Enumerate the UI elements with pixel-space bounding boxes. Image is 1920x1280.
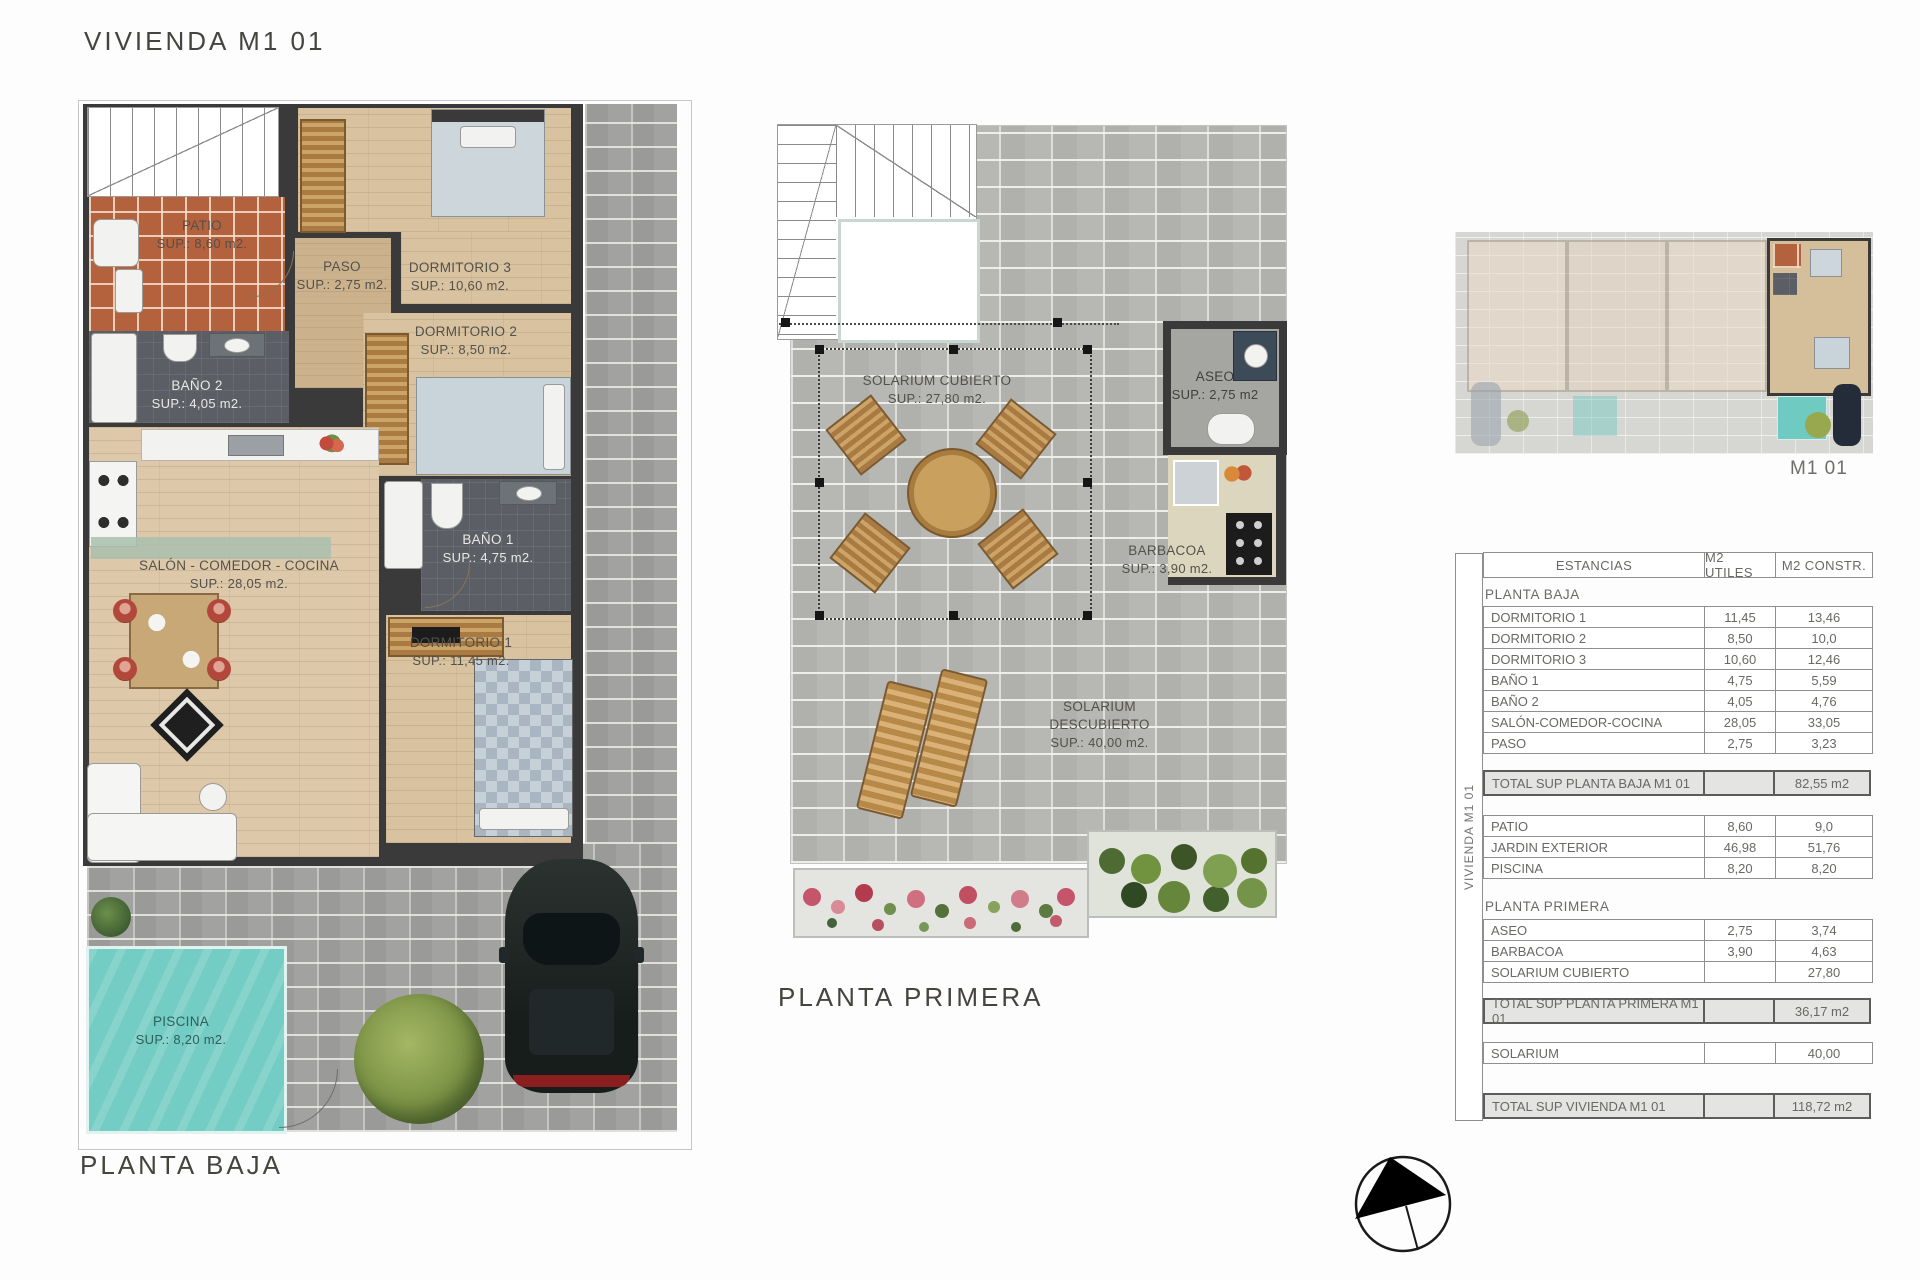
total-planta-baja-row: TOTAL SUP PLANTA BAJA M1 0182,55 m2 <box>1483 770 1875 798</box>
chair <box>207 657 231 681</box>
table-row: SALÓN-COMEDOR-COCINA28,0533,05 <box>1483 711 1875 733</box>
chair <box>113 599 137 623</box>
unit-highlighted <box>1767 238 1871 396</box>
table-row: PISCINA8,208,20 <box>1483 857 1875 879</box>
floor-plan-sheet: VIVIENDA M1 01 <box>0 0 1920 1280</box>
sink <box>209 333 265 357</box>
stairs <box>87 107 279 197</box>
header-estancias: ESTANCIAS <box>1483 552 1705 578</box>
unit-faded <box>1667 240 1767 392</box>
tree <box>1507 410 1529 432</box>
table-row: DORMITORIO 310,6012,46 <box>1483 648 1875 670</box>
table-row: BAÑO 24,054,76 <box>1483 690 1875 712</box>
room-label-piscina: PISCINASUP.: 8,20 m2. <box>101 1013 261 1049</box>
table-row: DORMITORIO 28,5010,0 <box>1483 627 1875 649</box>
tail-lights <box>513 1075 630 1087</box>
kitchen-sink <box>228 435 284 456</box>
bed <box>416 377 571 475</box>
mirror <box>499 947 509 963</box>
total-planta-primera-row: TOTAL SUP PLANTA PRIMERA M1 0136,17 m2 <box>1483 998 1875 1026</box>
table-row: DORMITORIO 111,4513,46 <box>1483 606 1875 628</box>
side-table <box>199 783 227 811</box>
caption-planta-baja: PLANTA BAJA <box>80 1150 283 1181</box>
room-label-salon: SALÓN - COMEDOR - COCINASUP.: 28,05 m2. <box>129 557 349 593</box>
car-faded <box>1471 382 1501 446</box>
planter-flowers <box>793 868 1089 938</box>
north-arrow-icon <box>1346 1146 1462 1262</box>
flowers <box>314 433 350 456</box>
page-title: VIVIENDA M1 01 <box>84 26 325 57</box>
thumbnail-caption: M1 01 <box>1790 458 1880 480</box>
table-row: PATIO8,609,0 <box>1483 815 1875 837</box>
section-planta-baja: PLANTA BAJA <box>1483 587 1875 602</box>
car <box>1833 384 1861 446</box>
room-label-patio: PATIOSUP.: 8,60 m2. <box>142 217 262 253</box>
unit-faded <box>1467 240 1567 392</box>
chair <box>113 657 137 681</box>
site-plan-thumbnail <box>1455 232 1873 454</box>
washer <box>93 219 139 267</box>
pillar-line <box>779 323 1119 325</box>
header-m2-utiles: M2 UTILES <box>1704 552 1776 578</box>
toilet <box>1207 413 1255 445</box>
stairs <box>777 124 977 340</box>
bed <box>431 109 545 217</box>
room-label-barbacoa: BARBACOASUP.: 3,90 m2. <box>1087 542 1247 578</box>
table-row: SOLARIUM CUBIERTO27,80 <box>1483 961 1875 983</box>
table-row: BARBACOA3,904,63 <box>1483 940 1875 962</box>
room-label-solarium-descubierto: SOLARIUM DESCUBIERTOSUP.: 40,00 m2. <box>1017 698 1182 752</box>
kitchen-counter <box>141 429 379 461</box>
shower-tray <box>1173 460 1219 506</box>
table-row: SOLARIUM40,00 <box>1483 1042 1875 1064</box>
food-tray <box>1220 463 1254 485</box>
table-row: PASO2,753,23 <box>1483 732 1875 754</box>
plant <box>91 897 131 937</box>
roof <box>529 989 614 1055</box>
pillow <box>460 126 516 148</box>
total-vivienda-row: TOTAL SUP VIVIENDA M1 01118,72 m2 <box>1483 1093 1875 1121</box>
floor-plan-planta-baja: PATIOSUP.: 8,60 m2. PASOSUP.: 2,75 m2. D… <box>78 100 692 1150</box>
chair <box>207 599 231 623</box>
stove <box>89 461 137 547</box>
unit-faded <box>1567 240 1667 392</box>
table-row: JARDIN EXTERIOR46,9851,76 <box>1483 836 1875 858</box>
pool-faded <box>1573 396 1617 436</box>
toilet <box>115 269 143 313</box>
table-header-row: ESTANCIAS M2 UTILES M2 CONSTR. <box>1483 552 1875 578</box>
table-row: BAÑO 14,755,59 <box>1483 669 1875 691</box>
toilet <box>431 483 463 529</box>
room-label-dormitorio2: DORMITORIO 2SUP.: 8,50 m2. <box>386 323 546 359</box>
room-label-dormitorio1: DORMITORIO 1SUP.: 11,45 m2. <box>381 634 541 670</box>
planter-shrubs <box>1087 830 1277 918</box>
bed <box>474 659 573 837</box>
tree <box>1805 412 1831 438</box>
room-label-aseo: ASEOSUP.: 2,75 m2 <box>1135 368 1295 404</box>
windshield <box>523 913 620 965</box>
car <box>499 859 644 1097</box>
pillow <box>543 384 565 470</box>
tree <box>354 994 484 1124</box>
pillow <box>479 808 569 830</box>
toilet <box>163 334 197 362</box>
terrace-table <box>907 448 997 538</box>
mirror <box>634 947 644 963</box>
room-label-solarium-cubierto: SOLARIUM CUBIERTOSUP.: 27,80 m2. <box>842 372 1032 408</box>
caption-planta-primera: PLANTA PRIMERA <box>778 982 1043 1013</box>
header-m2-constr: M2 CONSTR. <box>1775 552 1873 578</box>
sideboard <box>91 537 331 559</box>
dining-table <box>129 593 219 689</box>
room-label-bano1: BAÑO 1SUP.: 4,75 m2. <box>408 531 568 567</box>
sink <box>499 481 557 505</box>
section-planta-primera: PLANTA PRIMERA <box>1483 899 1875 914</box>
room-label-bano2: BAÑO 2SUP.: 4,05 m2. <box>117 377 277 413</box>
room-label-dormitorio3: DORMITORIO 3SUP.: 10,60 m2. <box>380 259 540 295</box>
sofa <box>87 813 237 861</box>
floor-plan-planta-primera: SOLARIUM CUBIERTOSUP.: 27,80 m2. ASEOSUP… <box>775 118 1355 1008</box>
table-row: ASEO2,753,74 <box>1483 919 1875 941</box>
wardrobe <box>300 119 346 233</box>
areas-table-side-strip: VIVIENDA M1 01 <box>1455 553 1483 1121</box>
